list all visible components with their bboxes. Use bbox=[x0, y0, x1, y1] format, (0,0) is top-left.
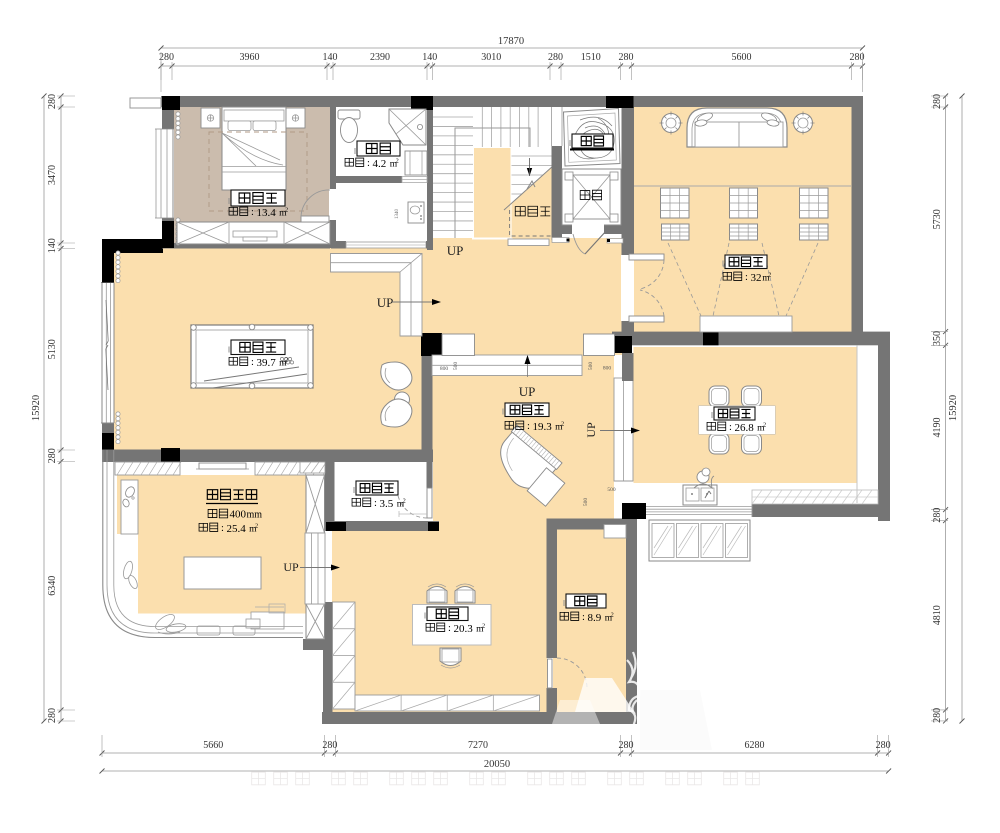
svg-text:140: 140 bbox=[422, 52, 437, 63]
svg-text:mm: mm bbox=[247, 510, 263, 521]
svg-text:2: 2 bbox=[763, 423, 766, 429]
svg-text:UP: UP bbox=[377, 295, 394, 310]
svg-text:UP: UP bbox=[519, 384, 536, 399]
svg-text::: : bbox=[729, 422, 732, 433]
svg-text:5730: 5730 bbox=[932, 209, 943, 229]
svg-text:39.7: 39.7 bbox=[257, 357, 277, 369]
svg-text:5600: 5600 bbox=[732, 52, 752, 63]
svg-text::: : bbox=[367, 158, 370, 169]
svg-text:140: 140 bbox=[323, 52, 338, 63]
svg-text:2: 2 bbox=[255, 524, 258, 530]
svg-text:2390: 2390 bbox=[370, 52, 390, 63]
svg-text:UP: UP bbox=[447, 243, 464, 258]
svg-text:2: 2 bbox=[285, 208, 288, 214]
svg-text:7270: 7270 bbox=[468, 740, 488, 751]
svg-text:2: 2 bbox=[611, 613, 614, 619]
svg-text:3.5: 3.5 bbox=[380, 498, 394, 510]
svg-text:2: 2 bbox=[482, 624, 485, 630]
svg-text:6280: 6280 bbox=[745, 740, 765, 751]
svg-text:280: 280 bbox=[619, 52, 634, 63]
svg-text:8.9: 8.9 bbox=[588, 612, 602, 624]
svg-text:5660: 5660 bbox=[203, 740, 223, 751]
svg-text:2: 2 bbox=[396, 159, 399, 165]
svg-text:280: 280 bbox=[322, 740, 337, 751]
svg-text:280: 280 bbox=[47, 448, 58, 463]
svg-text:2: 2 bbox=[768, 273, 771, 279]
svg-text::: : bbox=[448, 623, 451, 634]
svg-text:6340: 6340 bbox=[47, 576, 58, 596]
svg-text:500: 500 bbox=[588, 362, 594, 371]
svg-text:500: 500 bbox=[453, 362, 459, 371]
svg-text:3470: 3470 bbox=[47, 165, 58, 185]
svg-text:4190: 4190 bbox=[932, 417, 943, 437]
svg-text::: : bbox=[221, 523, 224, 534]
svg-text::: : bbox=[374, 498, 377, 509]
svg-text:500: 500 bbox=[583, 498, 589, 507]
svg-text:280: 280 bbox=[548, 52, 563, 63]
svg-text:13.4: 13.4 bbox=[257, 207, 277, 219]
svg-text:UP: UP bbox=[584, 422, 598, 438]
svg-text:2: 2 bbox=[561, 422, 564, 428]
svg-text:1510: 1510 bbox=[581, 52, 601, 63]
svg-text:UP: UP bbox=[283, 560, 299, 574]
svg-text:280: 280 bbox=[876, 740, 891, 751]
svg-text::: : bbox=[527, 421, 530, 432]
svg-text:15920: 15920 bbox=[948, 395, 959, 421]
svg-text::: : bbox=[251, 207, 254, 218]
svg-text:5130: 5130 bbox=[47, 339, 58, 359]
svg-text:500: 500 bbox=[607, 487, 616, 493]
svg-text:400: 400 bbox=[230, 509, 247, 521]
svg-text:140: 140 bbox=[47, 238, 58, 253]
svg-text:280: 280 bbox=[932, 508, 943, 523]
svg-text:2: 2 bbox=[403, 499, 406, 505]
svg-text:4810: 4810 bbox=[932, 605, 943, 625]
svg-text:280: 280 bbox=[47, 708, 58, 723]
svg-text:17870: 17870 bbox=[498, 36, 524, 47]
svg-text:280: 280 bbox=[932, 94, 943, 109]
svg-text:1340: 1340 bbox=[395, 209, 400, 220]
svg-text:32: 32 bbox=[751, 272, 762, 284]
svg-text:800: 800 bbox=[603, 366, 612, 372]
svg-text::: : bbox=[251, 357, 254, 368]
svg-text:3960: 3960 bbox=[240, 52, 260, 63]
svg-text:3010: 3010 bbox=[481, 52, 501, 63]
svg-text:26.8: 26.8 bbox=[735, 422, 755, 434]
svg-text::: : bbox=[745, 272, 748, 283]
svg-text:280: 280 bbox=[932, 708, 943, 723]
svg-text:20050: 20050 bbox=[484, 759, 510, 770]
svg-text:280: 280 bbox=[619, 740, 634, 751]
svg-text:19.3: 19.3 bbox=[533, 421, 553, 433]
svg-text:350: 350 bbox=[932, 331, 943, 346]
svg-text:2: 2 bbox=[285, 358, 288, 364]
svg-text:25.4: 25.4 bbox=[227, 523, 247, 535]
svg-text:15920: 15920 bbox=[31, 395, 42, 421]
svg-text:4.2: 4.2 bbox=[373, 158, 387, 170]
svg-text:20.3: 20.3 bbox=[454, 623, 474, 635]
svg-text:280: 280 bbox=[47, 94, 58, 109]
svg-text:800: 800 bbox=[440, 366, 449, 372]
svg-text::: : bbox=[582, 612, 585, 623]
